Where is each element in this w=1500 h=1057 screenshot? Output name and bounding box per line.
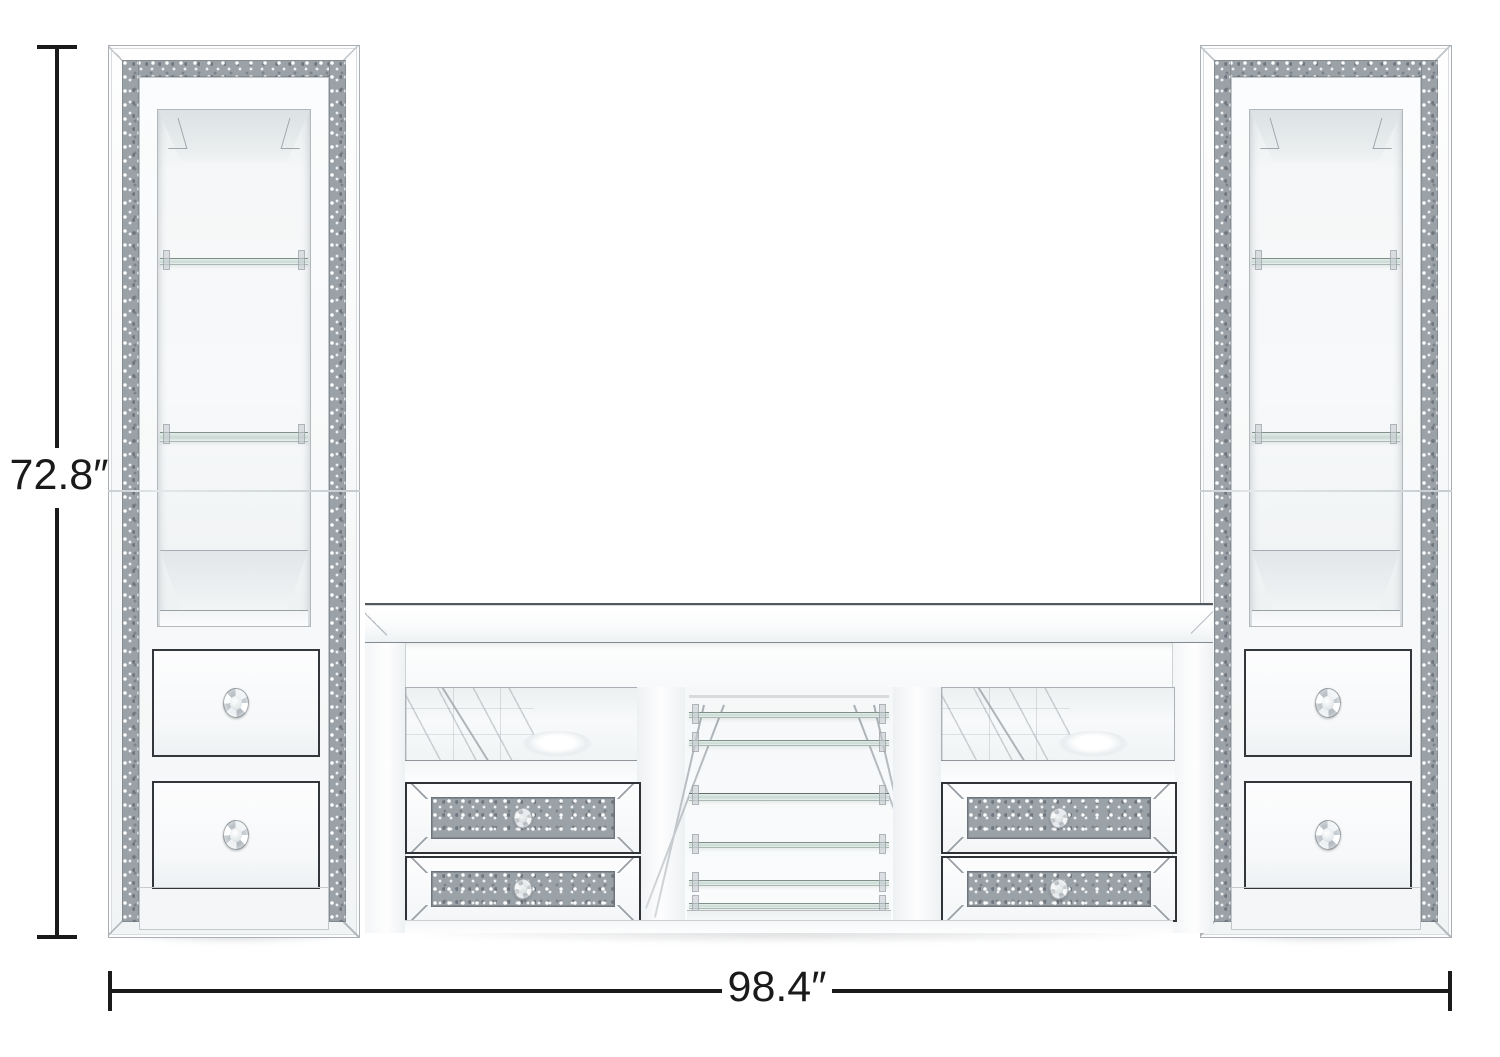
mirrored-shelf-edge — [160, 610, 308, 626]
tv-stand-left-panel — [365, 643, 406, 933]
width-label: 98.4″ — [720, 966, 834, 1009]
height-label: 72.8″ — [0, 454, 118, 497]
pier-display-cavity — [157, 109, 311, 627]
glass-shelf — [689, 793, 889, 801]
tv-stand — [365, 603, 1213, 933]
crystal-knob — [514, 879, 533, 900]
pier-drawer — [152, 781, 320, 889]
dimension-line-segment — [55, 47, 59, 448]
glass-shelf — [689, 842, 889, 848]
glass-shelf — [1252, 432, 1400, 442]
crystal-knob — [1050, 879, 1069, 900]
mirrored-shelf-floor — [1252, 550, 1400, 611]
tv-stand-drawer — [941, 782, 1177, 854]
glass-shelf — [689, 712, 889, 718]
crystal-trim-top — [122, 60, 346, 77]
glass-shelf-rack — [685, 687, 893, 927]
glass-shelf — [689, 880, 889, 886]
dimension-line-segment — [832, 989, 1450, 993]
dimension-tick — [37, 935, 77, 939]
crystal-drawer-front — [967, 871, 1151, 907]
glass-shelf — [1252, 258, 1400, 265]
stacked-unit-seam — [108, 490, 360, 492]
mirrored-shelf-edge — [1252, 610, 1400, 626]
tv-stand-right-panel — [1172, 643, 1213, 933]
mirrored-shelf-edge — [941, 760, 1175, 784]
crystal-drawer-front — [967, 797, 1151, 839]
tv-stand-drawer — [941, 856, 1177, 922]
pier-drawer — [1244, 649, 1412, 757]
crystal-knob — [223, 820, 249, 850]
dimension-tick — [1448, 971, 1452, 1011]
crystal-knob — [514, 808, 533, 829]
open-media-compartment — [941, 687, 1175, 762]
left-pier-cabinet — [108, 45, 360, 938]
tv-stand-divider — [893, 687, 941, 923]
stacked-unit-seam — [1200, 490, 1452, 492]
reflection-highlight — [1058, 731, 1128, 757]
pier-drawer — [1244, 781, 1412, 889]
tv-stand-base — [405, 920, 1173, 933]
tv-stand-top — [365, 603, 1213, 643]
dimension-line-segment — [110, 989, 722, 993]
mirrored-shelf-edge — [405, 760, 639, 784]
tv-stand-apron — [365, 643, 1213, 687]
glass-shelf — [160, 432, 308, 442]
crystal-knob — [223, 688, 249, 718]
glass-shelf — [689, 903, 889, 909]
glass-shelf — [689, 740, 889, 746]
pier-base-line — [139, 887, 329, 888]
crystal-trim-top — [1214, 60, 1438, 77]
crystal-knob — [1315, 688, 1341, 718]
dimension-tick — [37, 45, 77, 49]
crystal-drawer-front — [431, 871, 615, 907]
right-pier-cabinet — [1200, 45, 1452, 938]
glass-shelf — [160, 258, 308, 265]
dimension-line-segment — [55, 508, 59, 937]
open-media-compartment — [405, 687, 639, 762]
crystal-knob — [1050, 808, 1069, 829]
crystal-knob — [1315, 820, 1341, 850]
product-dimension-diagram: 72.8″ 98.4″ — [0, 0, 1500, 1057]
tv-stand-drawer — [405, 782, 641, 854]
tv-stand-drawer — [405, 856, 641, 922]
reflection-highlight — [522, 731, 592, 757]
pier-drawer — [152, 649, 320, 757]
pier-base-line — [1231, 887, 1421, 888]
crystal-drawer-front — [431, 797, 615, 839]
mirrored-shelf-floor — [160, 550, 308, 611]
pier-display-cavity — [1249, 109, 1403, 627]
dimension-tick — [108, 971, 112, 1011]
